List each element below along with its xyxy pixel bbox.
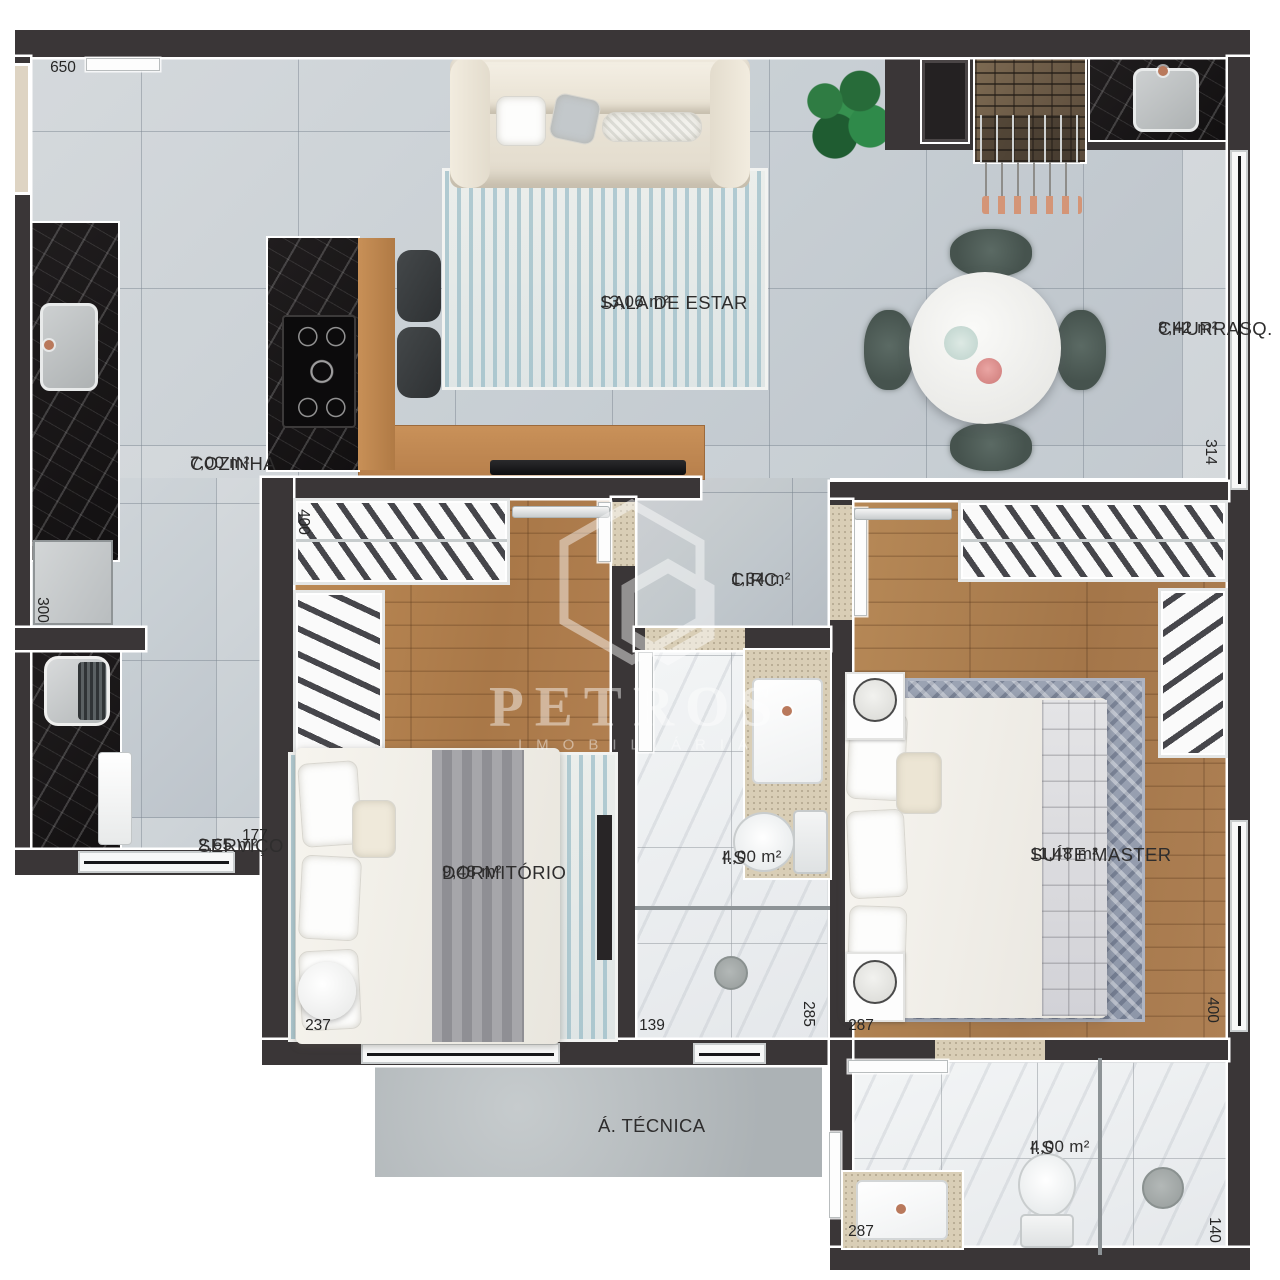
wall-bathroom-suite-bottom [830,1248,1250,1270]
bedroom-door-threshold [612,502,635,566]
dim-650: 650 [50,59,76,77]
room-area: 9,48 m² [442,861,502,883]
duct-recess [922,60,968,142]
room-area: 1,34 m² [731,568,791,590]
bathroom-social-door-leaf [638,652,653,752]
entry-window [15,63,30,195]
wardrobe-bedroom-top-rail [296,539,507,542]
nightstand-lamp-bottom [853,960,897,1004]
vanity-suite-faucet [896,1204,906,1214]
clothes-rail-bedroom [512,506,610,518]
floor-plan: SALA DE ESTAR 13,06 m² CHURRASQ. 8,42 m²… [0,0,1280,1280]
wall-kitchen-divider [15,628,145,650]
sofa-bolster [602,112,702,142]
dining-chair-bottom [950,423,1032,471]
entry-door-leaf [86,58,160,71]
bar-stool-1 [397,250,441,322]
skewer-handles [982,196,1082,214]
bed-suite-pillow-2 [846,809,909,900]
dim-400b: 400 [1203,997,1221,1023]
wall-top [15,30,1250,57]
bathroom-suite-door-leaf [848,1060,948,1073]
island-wood-top [358,238,395,470]
dining-chair-right [1056,310,1106,390]
toilet-suite-tank [1020,1214,1074,1248]
bathroom-social-window [693,1043,766,1064]
dim-400a: 400 [294,509,312,535]
dining-chair-top [950,229,1032,277]
shower-social-drain [714,956,748,990]
vanity-social-basin [752,678,823,784]
bathroom-social-door-threshold [645,628,745,650]
table-bowl [976,358,1002,384]
room-area: 13,06 m² [600,291,670,313]
bed-suite-cushion [896,752,942,814]
technical-access-glass [829,1132,841,1218]
tv [490,460,686,475]
room-area: 7,00 m² [190,452,250,474]
bed-bedroom-pillow-2 [298,854,362,941]
room-area: 11,48 m² [1030,843,1098,865]
bed-bedroom-runner [432,750,524,1042]
room-area: 8,42 m² [1158,317,1218,339]
wardrobe-suite-top-rail [961,539,1225,542]
suite-window [1230,820,1248,1032]
dim-285: 285 [799,1001,817,1027]
wall-living-bedroom [280,478,700,498]
shower-suite-glass [1098,1058,1102,1255]
shower-social-glass [635,906,830,910]
circulation-floor [635,478,830,650]
sofa-arm-left [450,57,490,188]
laundry-sink-ribs [78,662,106,720]
room-area: 4,00 m² [1030,1136,1090,1158]
dim-177: 177 [242,827,268,845]
toilet-social-tank [793,810,828,874]
bedroom-tv-panel [597,815,612,960]
bathroom-suite-door-threshold [935,1040,1045,1060]
bed-bedroom-cushion [352,800,396,858]
kitchen-faucet [44,340,54,350]
bedside-table-round [298,962,356,1020]
dim-300: 300 [33,597,51,623]
wall-suite-top [830,482,1228,500]
dim-287b: 287 [848,1223,874,1241]
plant [795,66,895,166]
toilet-suite-bowl [1018,1153,1076,1217]
grill-grate [980,115,1080,163]
clothes-rail-suite [854,508,952,520]
sofa-arm-right [710,57,750,188]
room-name: Á. TÉCNICA [598,1114,705,1138]
dim-237: 237 [305,1017,331,1035]
dining-chair-left [864,310,914,390]
dining-table [909,272,1061,424]
barbecue-faucet [1158,66,1168,76]
suite-door-leaf [854,508,867,616]
cooktop [282,315,356,428]
barbecue-sink [1133,68,1199,132]
sofa-pillow-gray [548,92,603,147]
suite-door-threshold [830,505,852,620]
dim-139: 139 [639,1017,665,1035]
bedroom-window [361,1043,560,1064]
nightstand-lamp-top [853,678,897,722]
table-plate [944,326,978,360]
shower-suite-drain [1142,1167,1184,1209]
vanity-social-faucet [782,706,792,716]
room-area: 4,00 m² [722,846,782,868]
dim-314: 314 [1201,439,1219,465]
wardrobe-suite-right [1158,588,1228,758]
dim-140: 140 [1205,1217,1223,1243]
living-rug [442,168,768,390]
ironing-board [98,752,132,845]
sofa-pillow-white [496,96,546,146]
kitchen-counter [30,223,118,560]
dim-287a: 287 [848,1017,874,1035]
bar-stool-2 [397,327,441,398]
